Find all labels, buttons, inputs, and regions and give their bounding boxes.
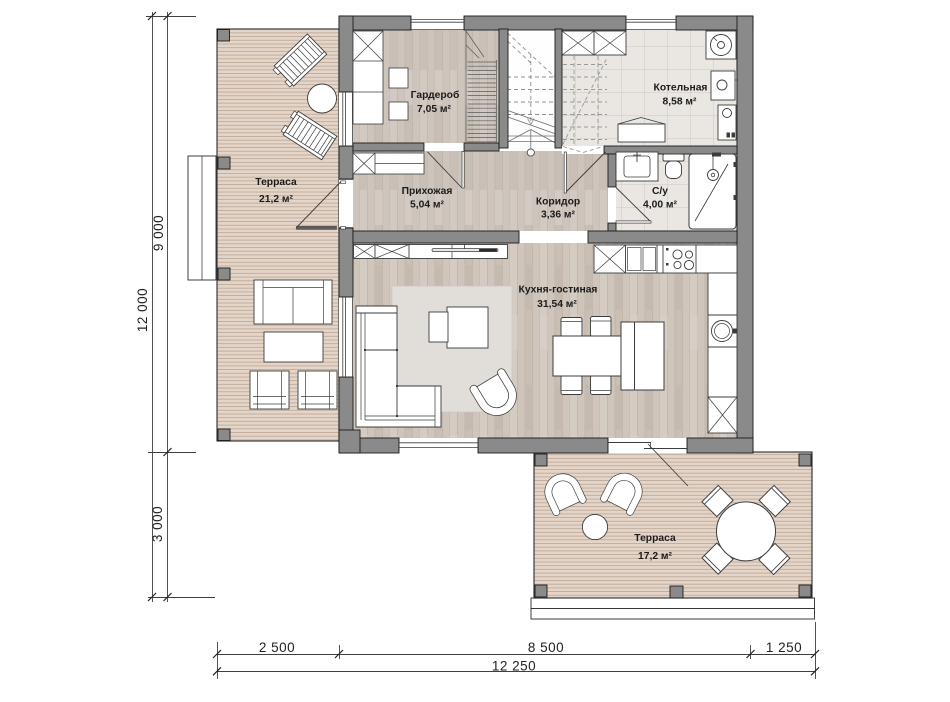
svg-text:Терраса: Терраса <box>255 177 297 188</box>
svg-text:4,00 м²: 4,00 м² <box>643 200 678 211</box>
svg-text:Гардероб: Гардероб <box>411 89 460 101</box>
svg-text:С/у: С/у <box>652 186 668 197</box>
svg-text:1 250: 1 250 <box>766 640 802 655</box>
svg-text:Коридор: Коридор <box>536 197 580 208</box>
svg-text:Кухня-гостиная: Кухня-гостиная <box>519 285 598 296</box>
svg-text:12 000: 12 000 <box>135 288 150 332</box>
svg-text:Терраса: Терраса <box>634 533 676 544</box>
svg-text:31,54 м²: 31,54 м² <box>537 299 577 310</box>
svg-text:3,36 м²: 3,36 м² <box>541 210 576 221</box>
svg-text:9 000: 9 000 <box>151 215 166 251</box>
svg-text:8 500: 8 500 <box>528 640 564 655</box>
svg-text:21,2 м²: 21,2 м² <box>259 194 294 205</box>
svg-text:17,2 м²: 17,2 м² <box>638 551 673 562</box>
svg-text:5,04 м²: 5,04 м² <box>410 200 445 211</box>
svg-text:12 250: 12 250 <box>492 658 536 673</box>
svg-text:Котельная: Котельная <box>654 83 708 94</box>
svg-text:8,58 м²: 8,58 м² <box>663 97 698 108</box>
svg-text:7,05 м²: 7,05 м² <box>417 104 452 115</box>
svg-text:3 000: 3 000 <box>150 506 165 542</box>
svg-text:2 500: 2 500 <box>259 640 295 655</box>
svg-text:Прихожая: Прихожая <box>402 186 453 197</box>
